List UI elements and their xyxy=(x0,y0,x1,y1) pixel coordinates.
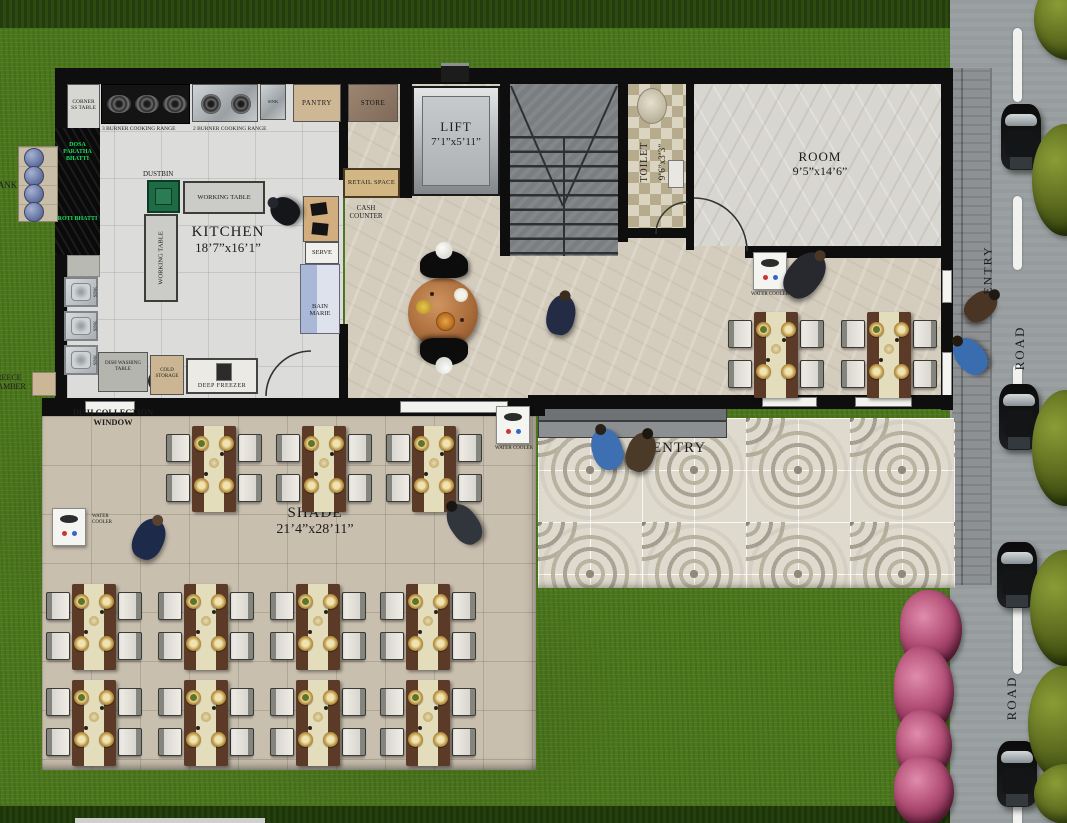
dining-table-shade xyxy=(380,584,476,670)
dish-dot xyxy=(100,610,104,614)
dish-dot xyxy=(766,358,770,362)
plate xyxy=(194,478,209,493)
tank-3 xyxy=(24,184,44,204)
food xyxy=(198,440,205,447)
chair xyxy=(46,728,70,756)
chair xyxy=(158,632,182,660)
sidewalk xyxy=(952,68,992,585)
road-label-2: ROAD xyxy=(1004,676,1020,721)
washbasin xyxy=(637,88,667,124)
chair xyxy=(118,592,142,620)
dish-dot xyxy=(308,726,312,730)
chair xyxy=(913,320,937,348)
floor-plan-canvas: LIFT 7’1”x5’11” CORNER SS TABLE 3 BURNER… xyxy=(0,0,1067,823)
dish-dot xyxy=(440,452,444,456)
tank-1 xyxy=(24,148,44,168)
roti-bhatti-label: ROTI BHATTI xyxy=(56,216,99,223)
range3-label: 3 BURNER COOKING RANGE xyxy=(102,126,176,132)
chair xyxy=(166,474,190,502)
table-top xyxy=(406,680,450,766)
kitchen-label: KITCHEN xyxy=(168,224,288,241)
cold-storage: COLD STORAGE xyxy=(150,355,184,395)
chair xyxy=(230,632,254,660)
serve-label: SERVE xyxy=(306,249,338,256)
pantry-label: PANTRY xyxy=(294,99,340,107)
hall-shade-opening xyxy=(400,401,508,413)
food xyxy=(412,694,419,701)
center-dish xyxy=(313,712,323,722)
chair xyxy=(342,688,366,716)
chair xyxy=(270,632,294,660)
chair xyxy=(46,688,70,716)
center-dish xyxy=(319,458,329,468)
plate xyxy=(433,690,448,705)
chair xyxy=(270,728,294,756)
range2-label: 2 BURNER COOKING RANGE xyxy=(193,126,267,132)
table-top xyxy=(406,584,450,670)
center-dish xyxy=(89,712,99,722)
water-cooler-shade-right-label: WATER COOLER xyxy=(482,446,546,452)
table-top xyxy=(72,680,116,766)
plate xyxy=(433,732,448,747)
dish-dot xyxy=(196,726,200,730)
plate xyxy=(329,478,344,493)
table-top xyxy=(754,312,798,398)
dish-dot xyxy=(220,452,224,456)
chair xyxy=(118,688,142,716)
road-label-1: ROAD xyxy=(1012,326,1028,371)
tank-label: TANK xyxy=(0,180,17,190)
plate xyxy=(186,594,201,609)
working-table-h: WORKING TABLE xyxy=(183,181,265,214)
wall-north xyxy=(55,68,953,84)
chair xyxy=(270,688,294,716)
entry-plaza-label: ENTRY xyxy=(652,440,706,457)
dish-dot xyxy=(418,630,422,634)
table-top xyxy=(867,312,911,398)
dustbin-label: DUSTBIN xyxy=(143,170,173,178)
working-table-h-label: WORKING TABLE xyxy=(185,194,263,201)
top-sink: SINK xyxy=(260,84,286,120)
chair xyxy=(276,434,300,462)
food xyxy=(78,694,85,701)
plate xyxy=(211,690,226,705)
plate xyxy=(869,322,884,337)
kitchen-dims: 18’7”x16’1” xyxy=(168,241,288,256)
dish-dot xyxy=(434,706,438,710)
plate-yellow xyxy=(416,300,431,314)
dish-dot xyxy=(782,338,786,342)
dosa-bhatti-label: DOSA PARATHA BHATTI xyxy=(56,142,99,163)
diner-top xyxy=(420,242,468,278)
plate xyxy=(414,478,429,493)
entry-side-label: ENTRY xyxy=(981,245,996,294)
dining-table-shade xyxy=(158,584,254,670)
diner-bottom xyxy=(420,338,468,374)
lane-dash xyxy=(1013,28,1022,102)
chair xyxy=(46,632,70,660)
center-dish xyxy=(89,616,99,626)
dining-table-hall xyxy=(841,312,937,398)
wall-toilet-east xyxy=(686,84,694,250)
water-cooler-shade-left xyxy=(52,508,86,546)
plate xyxy=(99,636,114,651)
plate xyxy=(74,690,89,705)
water-cooler-shade-right xyxy=(496,406,530,444)
chair xyxy=(452,688,476,716)
sink-1-label: SINK xyxy=(93,287,98,298)
food xyxy=(418,440,425,447)
plate xyxy=(211,732,226,747)
plate xyxy=(433,636,448,651)
table-top xyxy=(296,584,340,670)
wall-kitchen-east-lower xyxy=(339,324,348,398)
chair xyxy=(380,592,404,620)
wall-stairs-east xyxy=(618,84,628,242)
food xyxy=(302,694,309,701)
center-dish xyxy=(429,458,439,468)
lift-label: LIFT xyxy=(414,120,498,135)
bain-marie: BAIN MARIE xyxy=(300,264,340,334)
chair xyxy=(841,360,865,388)
food xyxy=(760,326,767,333)
chair xyxy=(238,474,262,502)
chair xyxy=(230,688,254,716)
dish-dot xyxy=(424,472,428,476)
chair xyxy=(158,728,182,756)
chair xyxy=(118,632,142,660)
center-dish xyxy=(201,616,211,626)
dining-table-shade xyxy=(270,584,366,670)
wall-stairs-west xyxy=(500,84,510,256)
chair xyxy=(158,688,182,716)
wall-lift-west xyxy=(400,84,412,198)
chair xyxy=(348,434,372,462)
dish-dot xyxy=(212,610,216,614)
center-dish xyxy=(423,616,433,626)
plate xyxy=(869,364,884,379)
food xyxy=(78,598,85,605)
plate xyxy=(304,478,319,493)
chair xyxy=(800,320,824,348)
sink-2-label: SINK xyxy=(93,321,98,332)
grass-top-band xyxy=(0,0,952,28)
toilet-dims: 9’6”x3’3” xyxy=(657,144,667,180)
dustbin xyxy=(147,180,180,213)
cold-storage-label: COLD STORAGE xyxy=(152,368,182,380)
plate xyxy=(414,436,429,451)
dish-dot xyxy=(330,452,334,456)
lane-dash xyxy=(1013,196,1022,270)
plate xyxy=(329,436,344,451)
center-dish xyxy=(201,712,211,722)
serve-counter: SERVE xyxy=(305,242,339,264)
retail-space-label: RETAIL SPACE xyxy=(345,179,398,186)
table-top xyxy=(192,426,236,512)
table-top xyxy=(184,680,228,766)
chair xyxy=(458,434,482,462)
dish-dot xyxy=(84,630,88,634)
dining-table-shade xyxy=(270,680,366,766)
dish-dot xyxy=(895,338,899,342)
plate xyxy=(99,690,114,705)
table-top xyxy=(302,426,346,512)
retail-space: RETAIL SPACE xyxy=(343,168,400,198)
chair xyxy=(118,728,142,756)
chair xyxy=(452,728,476,756)
dish-dot xyxy=(204,472,208,476)
east-window-1 xyxy=(942,270,952,303)
dish-collection-window-label: DISH COLLECTION WINDOW xyxy=(58,408,168,428)
center-dish xyxy=(884,344,894,354)
plate xyxy=(99,594,114,609)
toilet-fixture xyxy=(668,160,684,188)
chair xyxy=(452,592,476,620)
cooking-range-2-burner xyxy=(192,84,258,122)
wall-toilet-south xyxy=(628,228,686,238)
chair xyxy=(158,592,182,620)
water-cooler-shade-left-label: WATER COOLER xyxy=(92,514,126,526)
dining-table-shade xyxy=(46,584,142,670)
plate xyxy=(408,594,423,609)
dining-table-shade xyxy=(158,680,254,766)
tank-2 xyxy=(24,166,44,186)
chair xyxy=(230,728,254,756)
food xyxy=(302,598,309,605)
dish-dot xyxy=(324,706,328,710)
lane-dash xyxy=(1013,600,1022,674)
plate xyxy=(894,322,909,337)
food xyxy=(412,598,419,605)
plate xyxy=(186,636,201,651)
toilet-label-block: TOILET 9’6”x3’3” xyxy=(634,142,670,183)
corner-ss-table-label: CORNER SS TABLE xyxy=(69,99,98,112)
plate xyxy=(756,322,771,337)
plate-orange xyxy=(436,312,455,331)
center-dish xyxy=(771,344,781,354)
center-dish xyxy=(313,616,323,626)
chair xyxy=(728,360,752,388)
bottom-edge-strip xyxy=(75,818,265,823)
pantry: PANTRY xyxy=(293,84,341,122)
chair xyxy=(386,434,410,462)
dining-table-shade xyxy=(46,680,142,766)
center-dish xyxy=(209,458,219,468)
plate xyxy=(219,478,234,493)
dining-table-shade xyxy=(276,426,372,512)
plate xyxy=(439,436,454,451)
dish-dot xyxy=(434,610,438,614)
dining-table-shade xyxy=(380,680,476,766)
south-window-1 xyxy=(762,397,817,407)
chair xyxy=(380,728,404,756)
center-dish xyxy=(423,712,433,722)
dining-table-shade xyxy=(166,426,262,512)
chair xyxy=(342,592,366,620)
lift: LIFT 7’1”x5’11” xyxy=(412,86,500,196)
table-top xyxy=(72,584,116,670)
chair xyxy=(728,320,752,348)
chair xyxy=(276,474,300,502)
dish-dot xyxy=(324,610,328,614)
dish-dot xyxy=(308,630,312,634)
plate xyxy=(186,690,201,705)
plate xyxy=(74,594,89,609)
dish-dot xyxy=(84,726,88,730)
plate xyxy=(219,436,234,451)
chair xyxy=(46,592,70,620)
tank-4 xyxy=(24,202,44,222)
working-table-v-label: WORKING TABLE xyxy=(158,231,165,284)
dish-washing-table: DISH WASHING TABLE xyxy=(98,352,148,392)
room-dims: 9’5”x14’6” xyxy=(740,165,900,179)
cooking-range-3-burner xyxy=(101,84,190,124)
east-window-2 xyxy=(942,352,952,396)
shade-dims: 21’4”x28’11” xyxy=(225,522,405,538)
flower-bush xyxy=(894,756,954,823)
dish-dot xyxy=(100,706,104,710)
dining-table-shade xyxy=(386,426,482,512)
chair xyxy=(348,474,372,502)
room-label: ROOM xyxy=(740,150,900,165)
food xyxy=(308,440,315,447)
dish-dot xyxy=(418,726,422,730)
plate xyxy=(298,690,313,705)
dining-table-hall xyxy=(728,312,824,398)
plate xyxy=(186,732,201,747)
plate xyxy=(756,364,771,379)
chair xyxy=(238,434,262,462)
chair xyxy=(342,632,366,660)
dish-washing-table-label: DISH WASHING TABLE xyxy=(100,361,146,373)
plate xyxy=(211,636,226,651)
plate xyxy=(323,594,338,609)
plate xyxy=(408,690,423,705)
plate-white xyxy=(454,288,468,302)
sink-3-label: SINK xyxy=(93,355,98,366)
food xyxy=(873,326,880,333)
roof-vent xyxy=(441,63,469,82)
south-window-2 xyxy=(855,397,912,407)
plate xyxy=(323,690,338,705)
plate xyxy=(74,636,89,651)
plate xyxy=(323,636,338,651)
cash-counter-desk xyxy=(303,196,339,242)
plate xyxy=(781,322,796,337)
top-sink-label: SINK xyxy=(261,99,285,104)
table-top xyxy=(184,584,228,670)
table-top xyxy=(296,680,340,766)
chair xyxy=(342,728,366,756)
chair xyxy=(230,592,254,620)
cash-counter-label: CASH COUNTER xyxy=(342,204,390,220)
car xyxy=(997,741,1037,807)
chair xyxy=(380,688,404,716)
store-label: STORE xyxy=(349,99,397,107)
food xyxy=(190,694,197,701)
staircase xyxy=(510,84,618,256)
plate xyxy=(433,594,448,609)
bhatti-block: DOSA PARATHA BHATTI ROTI BHATTI xyxy=(55,128,100,255)
dish-dot xyxy=(196,630,200,634)
deep-freezer-label: DEEP FREEZER xyxy=(188,383,256,390)
chair xyxy=(452,632,476,660)
plate xyxy=(194,436,209,451)
toilet-label: TOILET xyxy=(639,142,650,183)
deep-freezer: DEEP FREEZER xyxy=(186,358,258,394)
chair xyxy=(270,592,294,620)
chair xyxy=(386,474,410,502)
stair-divider xyxy=(563,136,565,256)
chair xyxy=(380,632,404,660)
dish-dot xyxy=(314,472,318,476)
plate xyxy=(211,594,226,609)
store: STORE xyxy=(348,84,398,122)
plate xyxy=(298,636,313,651)
plate xyxy=(298,732,313,747)
dish-dot xyxy=(212,706,216,710)
plate xyxy=(408,732,423,747)
lift-dims: 7’1”x5’11” xyxy=(414,136,498,149)
chair xyxy=(800,360,824,388)
plate xyxy=(408,636,423,651)
chair xyxy=(913,360,937,388)
plate xyxy=(439,478,454,493)
chair xyxy=(166,434,190,462)
dish-dot xyxy=(879,358,883,362)
counter-block xyxy=(67,255,100,277)
plate xyxy=(894,364,909,379)
plate xyxy=(323,732,338,747)
plate xyxy=(781,364,796,379)
table-top xyxy=(412,426,456,512)
chair xyxy=(841,320,865,348)
grease-chamber-label: GREECE CHAMBER xyxy=(0,373,30,391)
bain-marie-label: BAIN MARIE xyxy=(301,303,339,318)
plate xyxy=(304,436,319,451)
plate xyxy=(298,594,313,609)
grease-chamber-box xyxy=(32,372,56,396)
food xyxy=(190,598,197,605)
plate xyxy=(74,732,89,747)
plate xyxy=(99,732,114,747)
